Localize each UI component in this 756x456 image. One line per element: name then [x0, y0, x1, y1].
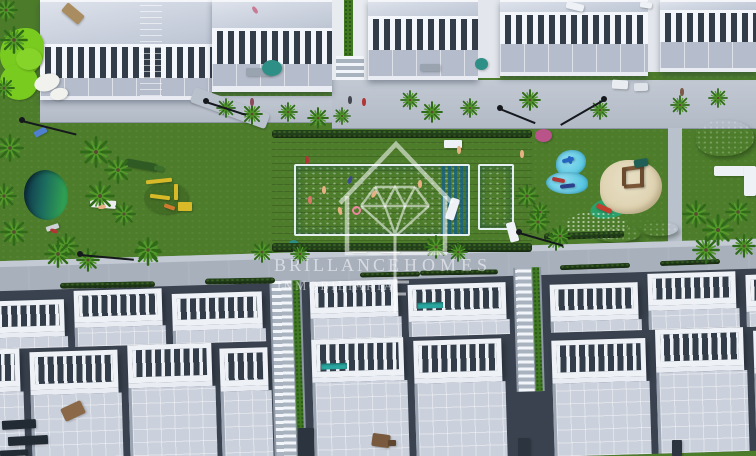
logo-house-roof	[340, 144, 452, 203]
logo-diamond	[361, 187, 429, 234]
watermark-brand-right: HOMES	[404, 255, 492, 276]
watermark-subtitle: INMOBILIARIA	[277, 279, 395, 294]
aerial-render-screenshot: BRILLANCE HOMES INMOBILIARIA	[0, 0, 756, 456]
brillance-homes-logo	[0, 0, 756, 456]
watermark-brand-left: BRILLANCE	[274, 255, 402, 276]
residential-complex-aerial-view: BRILLANCE HOMES INMOBILIARIA	[0, 0, 756, 456]
